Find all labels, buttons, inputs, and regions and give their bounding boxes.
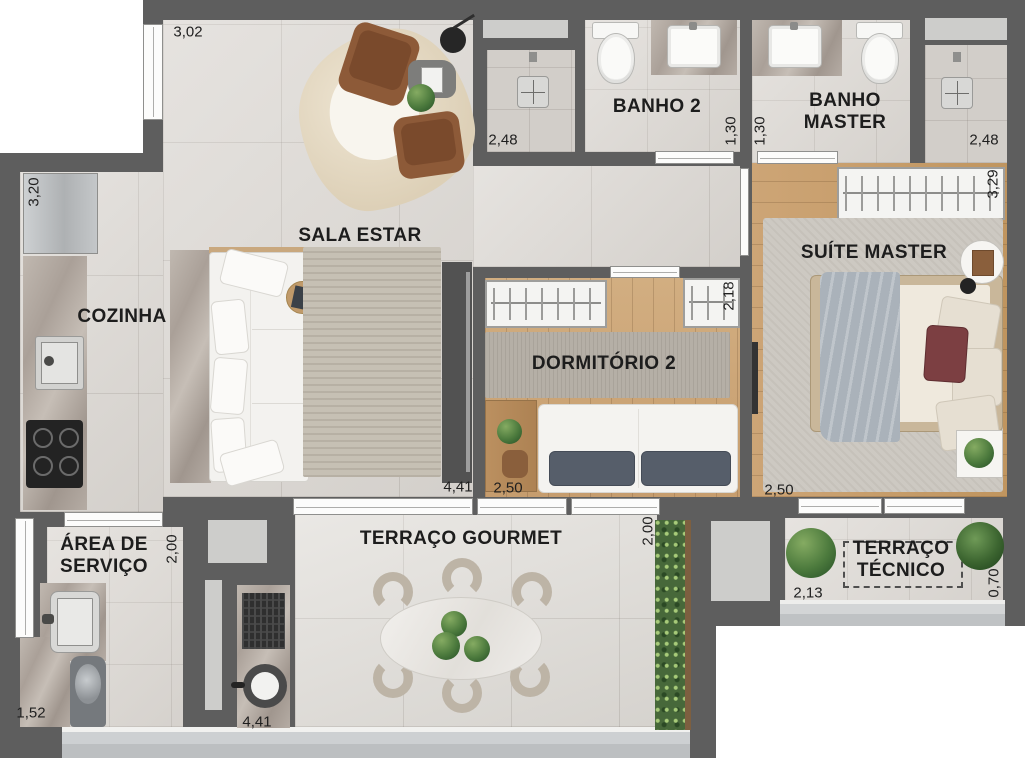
pillow-suite-maroon — [923, 325, 969, 384]
window-cozinha-servico — [64, 512, 163, 527]
laundry-faucet — [42, 614, 54, 624]
grill-knob — [231, 682, 245, 688]
dining-table — [380, 597, 542, 680]
room-label-banho-2: BANHO 2 — [613, 96, 701, 118]
dim-terraco-tecnico-depth: 0,70 — [986, 568, 1003, 597]
room-label-area-servico-line1: ÁREA DE — [60, 534, 148, 556]
table-plant-3 — [464, 636, 490, 662]
window-servico-left — [15, 518, 34, 638]
sink-banho-master — [768, 25, 822, 68]
decor-dorm2 — [502, 450, 528, 478]
floor-plan: SALA ESTAR COZINHA BANHO 2 BANHO MASTER … — [0, 0, 1025, 758]
tv-panel — [442, 262, 472, 483]
bush-tecnico-right — [956, 522, 1004, 570]
terraco-tecnico-parapet — [780, 600, 1005, 626]
toilet-banho-master — [861, 33, 899, 84]
banho2-high-window — [483, 20, 568, 38]
door-suite-leaf — [740, 168, 749, 256]
wardrobe-suite — [837, 167, 1005, 220]
toilet-banho2 — [597, 33, 635, 84]
kitchen-island — [170, 250, 211, 483]
table-plant-2 — [432, 632, 460, 660]
grill-burner — [243, 664, 287, 708]
plant-dorm2 — [497, 419, 522, 444]
floor-lamp-sala — [440, 27, 466, 53]
room-label-suite-master: SUÍTE MASTER — [801, 242, 947, 264]
vertical-garden-edge — [685, 520, 691, 730]
room-label-banho-master: BANHO MASTER — [804, 90, 887, 134]
window-dorm2-1 — [477, 498, 567, 515]
wardrobe-dorm2-left — [485, 280, 607, 328]
shower-valve-banho-master — [953, 52, 961, 62]
kitchen-faucet — [44, 356, 54, 366]
plant-suite — [964, 438, 994, 468]
dim-dorm2-closet-width: 2,18 — [721, 281, 738, 310]
dining-chair-1 — [373, 572, 413, 612]
shower-head-banho2 — [517, 76, 549, 108]
floor-hall — [473, 166, 740, 267]
door-banho2 — [655, 151, 734, 164]
shaft-block-2 — [205, 580, 222, 710]
vertical-garden — [655, 520, 688, 730]
dining-chair-3 — [512, 572, 552, 612]
plant-sala — [407, 84, 435, 112]
room-label-area-servico-line2: SERVIÇO — [60, 556, 148, 578]
dim-banho-master-shower-width: 2,48 — [969, 132, 998, 149]
sofa-pillow-3 — [210, 357, 249, 416]
rug-sala — [303, 247, 441, 477]
room-label-cozinha: COZINHA — [77, 306, 166, 328]
dim-terraco-gourmet-depth: 2,00 — [640, 516, 657, 545]
window-sala-left — [143, 24, 163, 120]
dim-area-servico-width: 1,52 — [16, 705, 45, 722]
dim-suite-width: 2,50 — [764, 482, 793, 499]
room-label-terraco-tecnico: TERRAÇO TÉCNICO — [853, 538, 950, 582]
room-label-banho-master-line2: MASTER — [804, 112, 887, 134]
faucet-banho2 — [689, 22, 697, 30]
dim-sala-top-width: 3,02 — [173, 24, 202, 41]
tv-suite — [752, 342, 758, 414]
door-banho-master — [757, 151, 838, 164]
dim-terraco-tecnico-width: 2,13 — [793, 585, 822, 602]
room-label-banho-master-line1: BANHO — [804, 90, 887, 112]
dim-area-servico-depth: 2,00 — [164, 534, 181, 563]
exterior-cutout-bottom-right — [716, 626, 1025, 758]
dim-banho2-depth: 1,30 — [723, 116, 740, 145]
window-suite-1 — [798, 498, 882, 514]
grill-grate — [242, 593, 285, 649]
dim-dorm2-width: 2,50 — [493, 480, 522, 497]
room-label-terraco-tecnico-line2: TÉCNICO — [853, 560, 950, 582]
laundry-sink — [50, 591, 100, 653]
dim-sala-width: 4,41 — [443, 479, 472, 496]
cooktop — [26, 420, 83, 488]
pillow-dorm2-right — [641, 451, 731, 486]
dining-chair-2 — [442, 558, 482, 598]
dim-terraco-gourmet-width: 4,41 — [242, 714, 271, 731]
terrace-parapet-bottom — [62, 727, 690, 758]
floor-lamp-suite — [960, 278, 976, 294]
shower-valve-banho2 — [529, 52, 537, 62]
armchair-2 — [392, 110, 466, 181]
room-label-terraco-gourmet: TERRAÇO GOURMET — [360, 528, 562, 550]
shower-head-banho-master — [941, 77, 973, 109]
dim-cozinha-depth: 3,20 — [26, 177, 43, 206]
room-label-area-servico: ÁREA DE SERVIÇO — [60, 534, 148, 578]
faucet-banho-master — [790, 22, 798, 30]
room-label-sala-estar: SALA ESTAR — [298, 225, 421, 247]
bush-tecnico-left — [786, 528, 836, 578]
dim-banho-master-depth: 1,30 — [752, 116, 769, 145]
washing-machine — [70, 656, 106, 727]
window-suite-2 — [884, 498, 965, 514]
door-dorm2 — [610, 266, 680, 278]
sofa-pillow-2 — [210, 298, 249, 355]
dim-banho2-shower-width: 2,48 — [488, 132, 517, 149]
sink-banho2 — [667, 25, 721, 68]
room-label-dormitorio-2: DORMITÓRIO 2 — [532, 353, 676, 375]
pillow-dorm2-left — [549, 451, 635, 486]
room-label-terraco-tecnico-line1: TERRAÇO — [853, 538, 950, 560]
kitchen-sink — [35, 336, 84, 390]
shaft-block-3 — [711, 521, 770, 601]
banho-master-high-window — [925, 18, 1007, 40]
sliding-door-terraco-1 — [293, 498, 473, 515]
window-dorm2-2 — [571, 498, 660, 515]
shaft-block-1 — [208, 520, 267, 563]
bed-suite-blanket — [820, 272, 900, 442]
exterior-cutout-top-left — [0, 0, 143, 153]
desk-dorm2 — [485, 400, 537, 492]
dim-suite-closet-width: 3,29 — [985, 169, 1002, 198]
